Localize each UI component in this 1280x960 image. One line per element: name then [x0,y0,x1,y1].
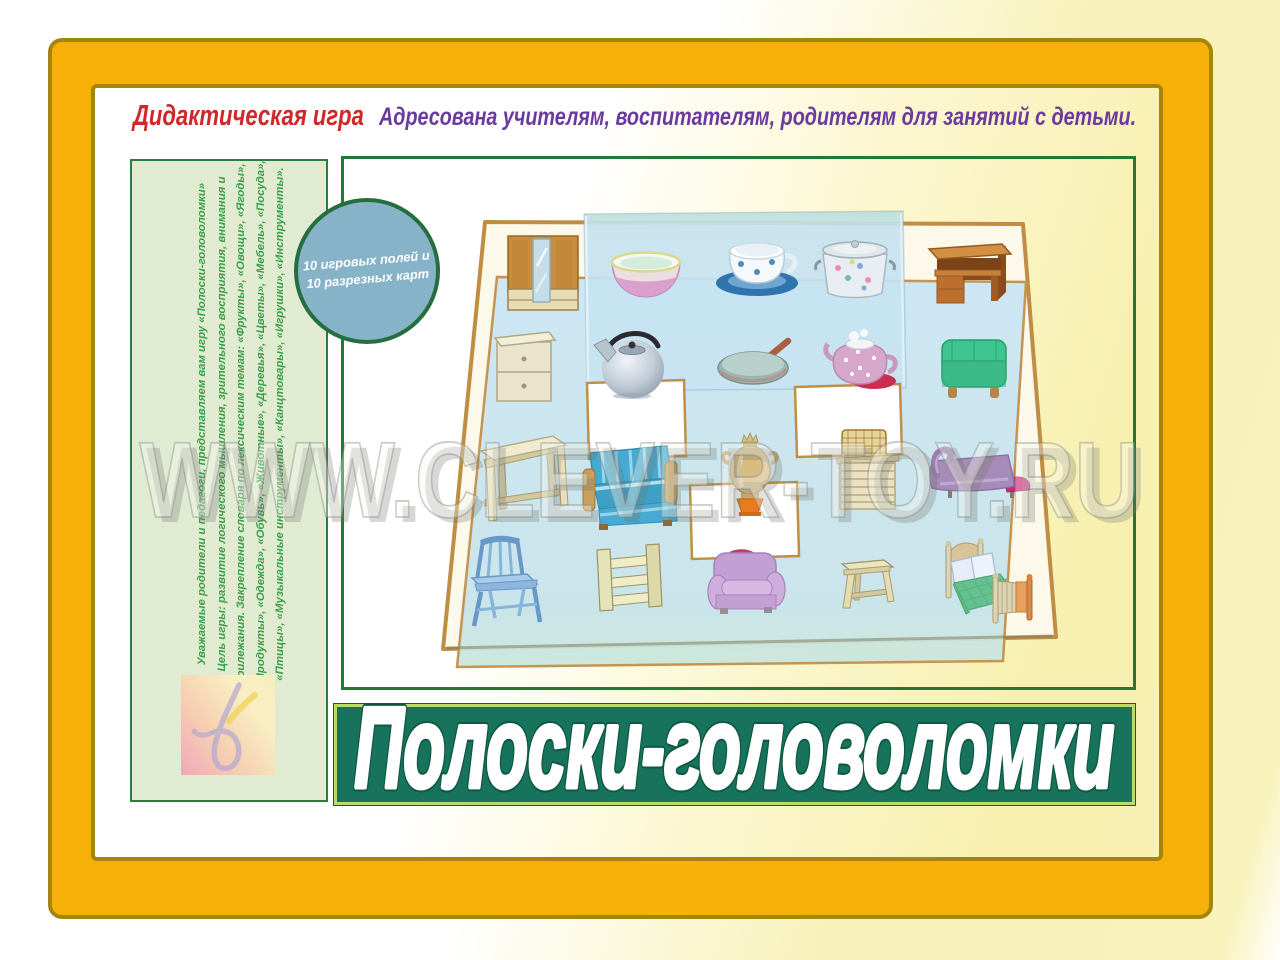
svg-text:Полоски-головоломки: Полоски-головоломки [354,684,1114,811]
